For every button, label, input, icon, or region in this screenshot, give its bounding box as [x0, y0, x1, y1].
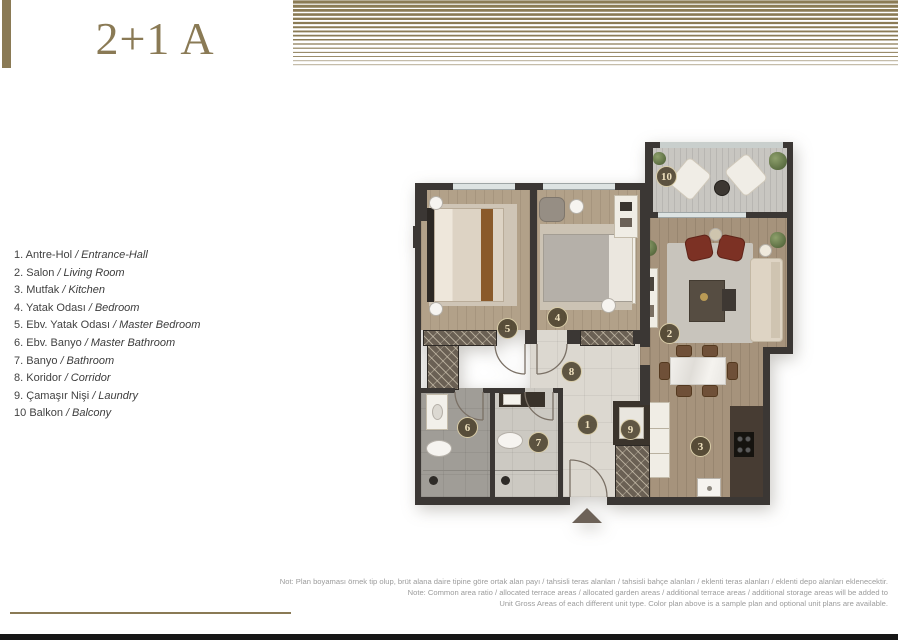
legend-number: 5.	[14, 319, 23, 331]
bottom-border-bar	[0, 634, 898, 640]
legend-name-tr: Balkon	[29, 407, 63, 419]
legend-item-10: 10 Balkon/Balcony	[14, 405, 200, 423]
wall	[607, 497, 770, 505]
legend-name-tr: Ebv. Yatak Odası	[26, 319, 110, 331]
legend-separator: /	[113, 319, 116, 331]
nightstand	[429, 302, 443, 316]
wall	[415, 183, 651, 190]
bottom-accent-line	[10, 612, 291, 614]
legend-number: 8.	[14, 372, 23, 384]
legend-name-tr: Banyo	[26, 355, 57, 367]
dining-chair	[676, 385, 692, 397]
room-badge-master-bedroom: 5	[497, 318, 518, 339]
pouf	[601, 298, 616, 313]
room-badge-master-bath: 6	[457, 417, 478, 438]
bathroom-vanity-dark	[499, 392, 545, 407]
legend-separator: /	[85, 337, 88, 349]
desk-item	[620, 202, 632, 211]
dining-chair	[702, 385, 718, 397]
wall	[633, 330, 640, 344]
room-legend: 1. Antre-Hol/Entrance-Hall 2. Salon/Livi…	[14, 247, 200, 423]
nightstand	[429, 196, 443, 210]
hall-wardrobe	[615, 445, 650, 499]
legend-item-5: 5. Ebv. Yatak Odası/Master Bedroom	[14, 317, 200, 335]
bed-runner	[481, 209, 493, 301]
floor-passage	[640, 345, 650, 367]
cooktop	[734, 432, 754, 457]
wardrobe-bedroom	[580, 330, 635, 346]
window	[543, 183, 615, 190]
sliding-door	[658, 212, 746, 218]
desk-item	[620, 218, 632, 227]
table-decor	[700, 293, 708, 301]
legend-name-en: Entrance-Hall	[81, 249, 148, 261]
legend-name-tr: Antre-Hol	[26, 249, 72, 261]
sofa-backrest	[771, 262, 780, 338]
wall	[530, 190, 537, 332]
legend-number: 1.	[14, 249, 23, 261]
shower-head	[501, 476, 510, 485]
dining-chair	[702, 345, 718, 357]
legend-name-en: Bathroom	[67, 355, 115, 367]
legend-separator: /	[65, 372, 68, 384]
legend-number: 4.	[14, 302, 23, 314]
legend-number: 9.	[14, 390, 23, 402]
side-cube-table	[722, 289, 736, 311]
wall	[490, 393, 495, 497]
footnote-line-en-1: Note: Common area ratio / allocated terr…	[268, 588, 888, 599]
legend-name-en: Laundry	[98, 390, 138, 402]
dining-table	[670, 357, 726, 385]
legend-name-en: Corridor	[71, 372, 111, 384]
sofa-seam	[754, 299, 771, 300]
legend-item-3: 3. Mutfak/Kitchen	[14, 282, 200, 300]
legend-name-en: Bedroom	[95, 302, 140, 314]
legend-separator: /	[75, 249, 78, 261]
footnote-line-tr: Not: Plan boyaması örnek tip olup, brüt …	[268, 577, 888, 588]
wall	[415, 497, 570, 505]
legend-item-9: 9. Çamaşır Nişi/Laundry	[14, 388, 200, 406]
page-title: 2+1 A	[88, 16, 222, 62]
plant	[653, 152, 666, 165]
room-badge-balcony: 10	[656, 166, 677, 187]
room-badge-living: 2	[659, 323, 680, 344]
balcony-railing	[650, 142, 793, 148]
wardrobe-hall-left	[427, 345, 459, 390]
legend-number: 2.	[14, 267, 23, 279]
legend-item-1: 1. Antre-Hol/Entrance-Hall	[14, 247, 200, 265]
wall	[640, 190, 650, 347]
dining-chair	[727, 362, 738, 380]
floor-lamp	[759, 244, 772, 257]
wall	[421, 388, 455, 393]
room-badge-bathroom: 7	[528, 432, 549, 453]
door-arc-master-bedroom	[495, 344, 525, 374]
bedroom-armchair	[539, 197, 565, 222]
toilet	[426, 440, 452, 457]
wall	[787, 142, 793, 352]
wall	[763, 347, 770, 505]
bedroom-desk	[614, 195, 638, 238]
balcony-table	[714, 180, 730, 196]
legend-separator: /	[60, 355, 63, 367]
stripe-decoration	[293, 0, 898, 66]
dining-chair	[676, 345, 692, 357]
legend-item-2: 2. Salon/Living Room	[14, 265, 200, 283]
bedroom-bed-headboard	[632, 232, 636, 304]
room-badge-corridor: 8	[561, 361, 582, 382]
room-badge-bedroom: 4	[547, 307, 568, 328]
wall	[558, 393, 563, 497]
legend-name-tr: Çamaşır Nişi	[26, 390, 89, 402]
legend-separator: /	[66, 407, 69, 419]
legend-name-en: Master Bathroom	[91, 337, 175, 349]
legend-name-tr: Koridor	[26, 372, 61, 384]
shower-divider	[493, 470, 563, 471]
side-table	[569, 199, 584, 214]
window	[453, 183, 515, 190]
entrance-arrow-icon	[572, 508, 602, 523]
legend-name-tr: Salon	[26, 267, 54, 279]
room-badge-kitchen: 3	[690, 436, 711, 457]
legend-separator: /	[57, 267, 60, 279]
legend-separator: /	[62, 284, 65, 296]
plant	[769, 152, 787, 170]
wardrobe-master	[423, 330, 497, 346]
shower-divider	[423, 470, 490, 471]
legend-name-en: Kitchen	[68, 284, 105, 296]
sink-basin	[503, 394, 521, 405]
legend-name-en: Living Room	[63, 267, 124, 279]
sink-drain	[707, 486, 712, 491]
accent-table	[709, 228, 722, 241]
footnote-line-en-2: Unit Gross Areas of each different unit …	[268, 599, 888, 610]
room-badge-laundry: 9	[620, 419, 641, 440]
legend-separator: /	[89, 302, 92, 314]
wall	[525, 330, 537, 344]
footnote: Not: Plan boyaması örnek tip olup, brüt …	[268, 577, 888, 609]
legend-name-tr: Mutfak	[26, 284, 59, 296]
legend-item-7: 7. Banyo/Bathroom	[14, 353, 200, 371]
wall-pier	[413, 226, 421, 248]
legend-item-6: 6. Ebv. Banyo/Master Bathroom	[14, 335, 200, 353]
sink-basin	[432, 404, 443, 420]
master-bed-headboard	[427, 208, 434, 302]
plant	[770, 232, 786, 248]
sofa	[750, 258, 783, 342]
coffee-table	[689, 280, 725, 322]
bedroom-bed	[543, 234, 633, 302]
legend-name-en: Balcony	[72, 407, 111, 419]
legend-number: 6.	[14, 337, 23, 349]
legend-name-tr: Yatak Odası	[26, 302, 86, 314]
kitchen-sink	[697, 478, 721, 497]
shower-head	[429, 476, 438, 485]
legend-number: 3.	[14, 284, 23, 296]
legend-number: 7.	[14, 355, 23, 367]
legend-name-tr: Ebv. Banyo	[26, 337, 81, 349]
master-bed	[434, 208, 504, 302]
legend-separator: /	[92, 390, 95, 402]
toilet	[497, 432, 523, 449]
wall	[640, 365, 650, 405]
legend-item-4: 4. Yatak Odası/Bedroom	[14, 300, 200, 318]
legend-name-en: Master Bedroom	[119, 319, 200, 331]
room-badge-entrance: 1	[577, 414, 598, 435]
bathroom-vanity	[426, 394, 448, 430]
wall	[567, 330, 580, 344]
dining-chair	[659, 362, 670, 380]
legend-number: 10	[14, 407, 26, 419]
brochure-page: 2+1 A 1. Antre-Hol/Entrance-Hall 2. Salo…	[0, 0, 898, 640]
wall	[650, 142, 660, 148]
floor-plan: 1 2 3 4 5 6 7 8 9 10	[413, 140, 794, 530]
left-accent-bar	[2, 0, 11, 68]
legend-item-8: 8. Koridor/Corridor	[14, 370, 200, 388]
